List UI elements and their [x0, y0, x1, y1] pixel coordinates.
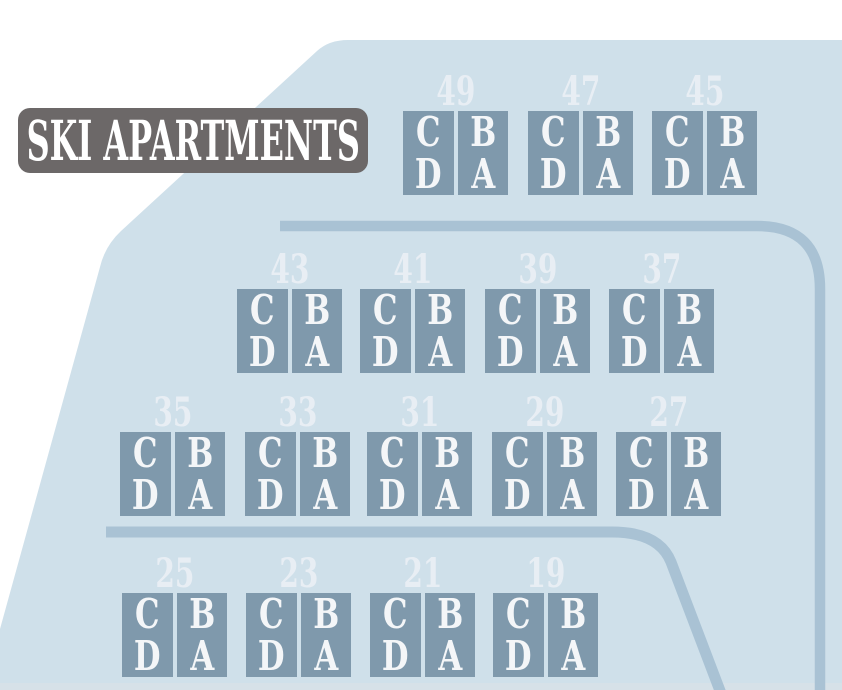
building: 39 C D B A: [485, 236, 590, 373]
building-block-right[interactable]: B A: [664, 289, 715, 373]
unit-b[interactable]: B: [428, 437, 466, 469]
building-block-left[interactable]: C D: [485, 289, 536, 373]
building-block-right[interactable]: B A: [292, 289, 343, 373]
building: 45 C D B A: [652, 58, 757, 195]
building-blocks: C D B A: [237, 289, 342, 373]
building: 33 C D B A: [245, 379, 350, 516]
unit-c[interactable]: C: [128, 598, 166, 630]
building-block-right[interactable]: B A: [175, 432, 226, 516]
building: 41 C D B A: [360, 236, 465, 373]
building-block-left[interactable]: C D: [370, 593, 421, 677]
unit-d[interactable]: D: [373, 479, 411, 511]
building-block-left[interactable]: C D: [120, 432, 171, 516]
building-block-right[interactable]: B A: [547, 432, 598, 516]
building-block-left[interactable]: C D: [609, 289, 660, 373]
unit-d[interactable]: D: [366, 336, 404, 368]
unit-d[interactable]: D: [491, 336, 529, 368]
building-block-right[interactable]: B A: [301, 593, 352, 677]
building: 25 C D B A: [122, 540, 227, 677]
building-blocks: C D B A: [528, 111, 633, 195]
building-block-left[interactable]: C D: [122, 593, 173, 677]
building-number: 37: [609, 236, 714, 289]
building: 49 C D B A: [403, 58, 508, 195]
unit-a[interactable]: A: [670, 336, 708, 368]
unit-a[interactable]: A: [298, 336, 336, 368]
unit-a[interactable]: A: [183, 640, 221, 672]
site-map: SKI APARTMENTS 49 C D B A 47 C D B A: [0, 0, 842, 690]
unit-a[interactable]: A: [677, 479, 715, 511]
unit-a[interactable]: A: [421, 336, 459, 368]
building-number: 19: [493, 540, 598, 593]
unit-c[interactable]: C: [366, 294, 404, 326]
unit-d[interactable]: D: [499, 640, 537, 672]
building-number: 43: [237, 236, 342, 289]
building-blocks: C D B A: [609, 289, 714, 373]
building-number: 33: [245, 379, 350, 432]
unit-b[interactable]: B: [464, 116, 502, 148]
unit-b[interactable]: B: [298, 294, 336, 326]
building: 29 C D B A: [492, 379, 597, 516]
unit-c[interactable]: C: [615, 294, 653, 326]
building-number: 47: [528, 58, 633, 111]
unit-a[interactable]: A: [464, 158, 502, 190]
ski-apartments-label: SKI APARTMENTS: [26, 113, 359, 168]
building-blocks: C D B A: [485, 289, 590, 373]
unit-b[interactable]: B: [670, 294, 708, 326]
unit-b[interactable]: B: [589, 116, 627, 148]
unit-d[interactable]: D: [251, 479, 289, 511]
building-block-right[interactable]: B A: [458, 111, 509, 195]
building-block-left[interactable]: C D: [367, 432, 418, 516]
unit-b[interactable]: B: [553, 437, 591, 469]
building: 37 C D B A: [609, 236, 714, 373]
building-blocks: C D B A: [360, 289, 465, 373]
building-block-left[interactable]: C D: [493, 593, 544, 677]
unit-b[interactable]: B: [546, 294, 584, 326]
building-block-left[interactable]: C D: [245, 432, 296, 516]
unit-c[interactable]: C: [126, 437, 164, 469]
building-blocks: C D B A: [492, 432, 597, 516]
building-block-left[interactable]: C D: [237, 289, 288, 373]
unit-d[interactable]: D: [622, 479, 660, 511]
unit-d[interactable]: D: [534, 158, 572, 190]
building-block-right[interactable]: B A: [300, 432, 351, 516]
unit-d[interactable]: D: [243, 336, 281, 368]
unit-a[interactable]: A: [554, 640, 592, 672]
building-blocks: C D B A: [122, 593, 227, 677]
building-number: 45: [652, 58, 757, 111]
building-number: 35: [120, 379, 225, 432]
building: 43 C D B A: [237, 236, 342, 373]
building-number: 49: [403, 58, 508, 111]
unit-d[interactable]: D: [252, 640, 290, 672]
building-block-right[interactable]: B A: [415, 289, 466, 373]
unit-b[interactable]: B: [183, 598, 221, 630]
unit-c[interactable]: C: [243, 294, 281, 326]
building-block-left[interactable]: C D: [246, 593, 297, 677]
unit-d[interactable]: D: [128, 640, 166, 672]
unit-b[interactable]: B: [713, 116, 751, 148]
building: 23 C D B A: [246, 540, 351, 677]
unit-d[interactable]: D: [498, 479, 536, 511]
building-number: 39: [485, 236, 590, 289]
unit-b[interactable]: B: [677, 437, 715, 469]
building-block-right[interactable]: B A: [671, 432, 722, 516]
building-block-left[interactable]: C D: [528, 111, 579, 195]
unit-b[interactable]: B: [181, 437, 219, 469]
unit-c[interactable]: C: [499, 598, 537, 630]
unit-c[interactable]: C: [622, 437, 660, 469]
building: 47 C D B A: [528, 58, 633, 195]
unit-a[interactable]: A: [546, 336, 584, 368]
building-number: 31: [367, 379, 472, 432]
building-block-right[interactable]: B A: [425, 593, 476, 677]
unit-d[interactable]: D: [615, 336, 653, 368]
unit-a[interactable]: A: [431, 640, 469, 672]
unit-c[interactable]: C: [409, 116, 447, 148]
unit-b[interactable]: B: [421, 294, 459, 326]
building-number: 41: [360, 236, 465, 289]
unit-d[interactable]: D: [658, 158, 696, 190]
unit-c[interactable]: C: [491, 294, 529, 326]
building-number: 25: [122, 540, 227, 593]
building-block-right[interactable]: B A: [548, 593, 599, 677]
building: 19 C D B A: [493, 540, 598, 677]
building-block-left[interactable]: C D: [360, 289, 411, 373]
building: 21 C D B A: [370, 540, 475, 677]
unit-a[interactable]: A: [306, 479, 344, 511]
building: 27 C D B A: [616, 379, 721, 516]
unit-a[interactable]: A: [307, 640, 345, 672]
unit-b[interactable]: B: [554, 598, 592, 630]
building-number: 23: [246, 540, 351, 593]
building-block-right[interactable]: B A: [177, 593, 228, 677]
building: 31 C D B A: [367, 379, 472, 516]
building-block-right[interactable]: B A: [540, 289, 591, 373]
unit-a[interactable]: A: [181, 479, 219, 511]
unit-b[interactable]: B: [431, 598, 469, 630]
unit-d[interactable]: D: [376, 640, 414, 672]
building-number: 27: [616, 379, 721, 432]
unit-d[interactable]: D: [409, 158, 447, 190]
unit-d[interactable]: D: [126, 479, 164, 511]
building-blocks: C D B A: [616, 432, 721, 516]
unit-c[interactable]: C: [534, 116, 572, 148]
unit-c[interactable]: C: [376, 598, 414, 630]
building-blocks: C D B A: [245, 432, 350, 516]
building-blocks: C D B A: [370, 593, 475, 677]
ski-apartments-badge: SKI APARTMENTS: [18, 108, 368, 173]
building-blocks: C D B A: [403, 111, 508, 195]
unit-a[interactable]: A: [589, 158, 627, 190]
building-block-right[interactable]: B A: [422, 432, 473, 516]
unit-b[interactable]: B: [306, 437, 344, 469]
building-blocks: C D B A: [246, 593, 351, 677]
unit-c[interactable]: C: [498, 437, 536, 469]
building-blocks: C D B A: [493, 593, 598, 677]
building-block-left[interactable]: C D: [652, 111, 703, 195]
unit-c[interactable]: C: [252, 598, 290, 630]
unit-c[interactable]: C: [373, 437, 411, 469]
building-block-left[interactable]: C D: [616, 432, 667, 516]
building: 35 C D B A: [120, 379, 225, 516]
unit-a[interactable]: A: [428, 479, 466, 511]
unit-b[interactable]: B: [307, 598, 345, 630]
building-block-left[interactable]: C D: [403, 111, 454, 195]
building-number: 21: [370, 540, 475, 593]
unit-c[interactable]: C: [251, 437, 289, 469]
unit-a[interactable]: A: [553, 479, 591, 511]
building-block-left[interactable]: C D: [492, 432, 543, 516]
building-blocks: C D B A: [367, 432, 472, 516]
unit-a[interactable]: A: [713, 158, 751, 190]
building-blocks: C D B A: [120, 432, 225, 516]
unit-c[interactable]: C: [658, 116, 696, 148]
building-number: 29: [492, 379, 597, 432]
building-blocks: C D B A: [652, 111, 757, 195]
building-block-right[interactable]: B A: [707, 111, 758, 195]
building-block-right[interactable]: B A: [583, 111, 634, 195]
